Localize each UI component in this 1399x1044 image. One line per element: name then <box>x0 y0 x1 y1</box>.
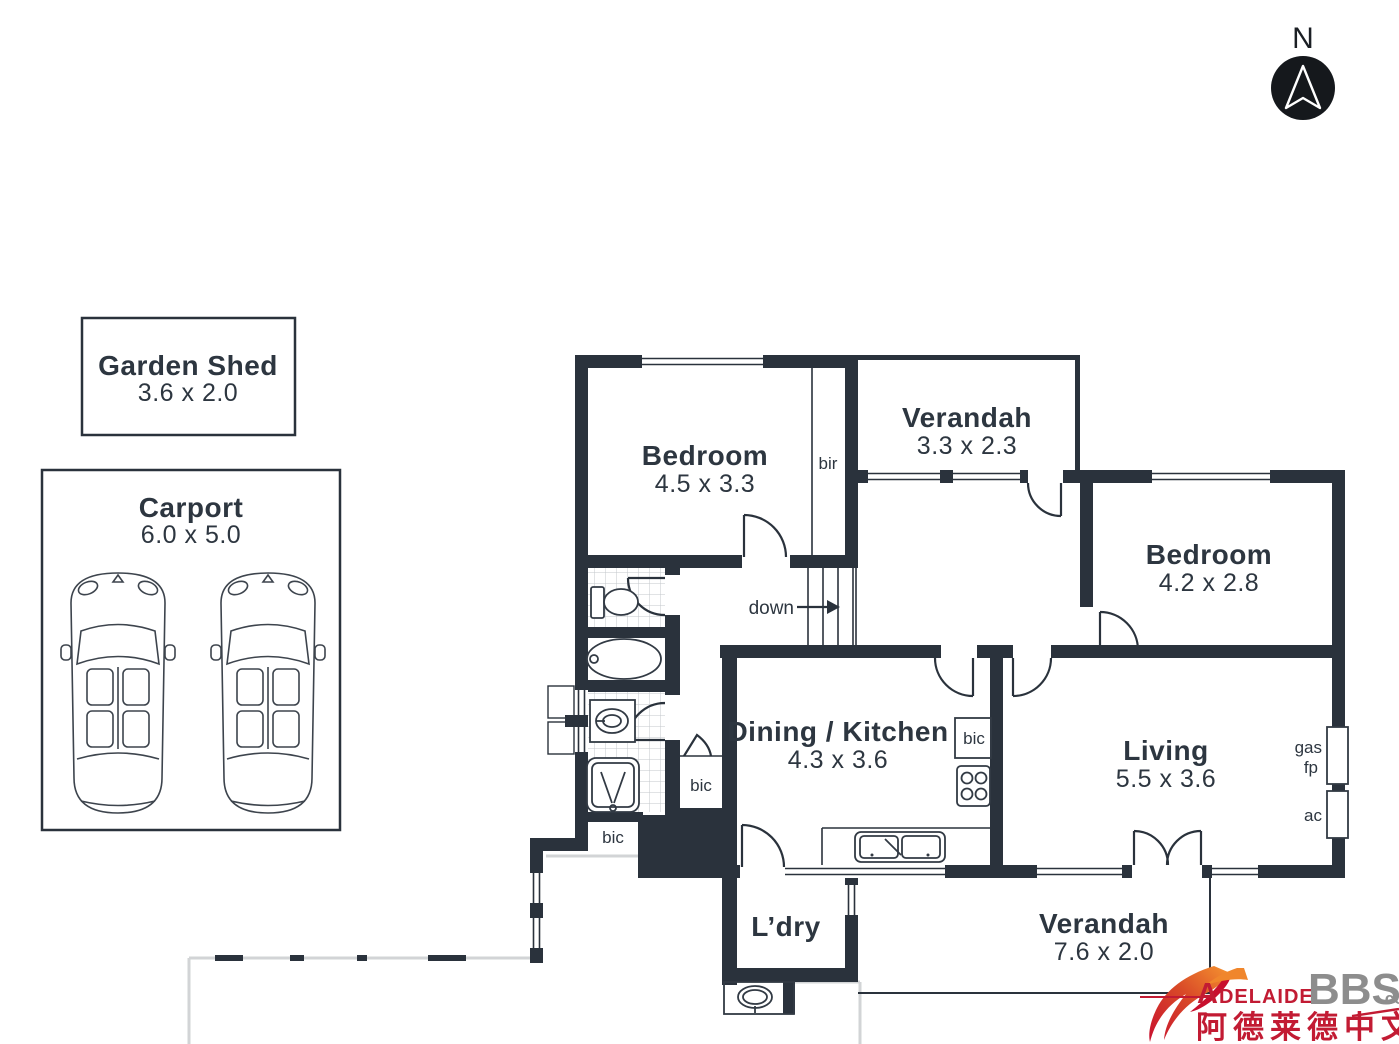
bedroom1-dims: 4.5 x 3.3 <box>655 470 755 498</box>
garden-shed-dims: 3.6 x 2.0 <box>138 379 238 407</box>
dining-name: Dining / Kitchen <box>727 716 948 747</box>
shower-icon <box>587 758 639 812</box>
verandah-bottom-dims: 7.6 x 2.0 <box>1054 938 1154 966</box>
verandah-bottom-name: Verandah <box>1039 908 1169 939</box>
room-label-bedroom-1: Bedroom 4.5 x 3.3 <box>642 440 768 498</box>
bedroom1-name: Bedroom <box>642 440 768 471</box>
vanity-basin-icon <box>590 700 635 742</box>
garden-shed-label: Garden Shed <box>98 350 278 381</box>
watermark: Adelaide BBS .com 阿德莱德中文网 <box>1140 965 1399 1044</box>
gas-label: gas <box>1295 738 1322 757</box>
carport-dims: 6.0 x 5.0 <box>141 521 241 549</box>
gas-fireplace-icon <box>1327 727 1348 784</box>
kitchen-cupboard-label: bic <box>963 729 985 748</box>
watermark-brand-suffix: .com <box>1380 989 1399 1008</box>
air-conditioner-icon <box>1327 791 1348 838</box>
bath-cupboard-label: bic <box>602 828 624 847</box>
verandah-top-name: Verandah <box>902 402 1032 433</box>
north-compass: N <box>1271 22 1335 120</box>
toilet-icon <box>591 587 638 618</box>
built-in-robe-label: bir <box>819 454 838 473</box>
cooktop-icon <box>957 766 990 806</box>
north-label: N <box>1292 22 1314 55</box>
property-boundary <box>189 856 860 1044</box>
staircase: down <box>749 568 856 645</box>
bathtub-icon <box>587 639 661 679</box>
floorplan-page: Garden Shed 3.6 x 2.0 Carport 6.0 x 5.0 <box>0 0 1399 1044</box>
car-top-view-icon <box>61 573 175 813</box>
stairs-down-label: down <box>749 598 794 619</box>
dining-dims: 4.3 x 3.6 <box>788 746 888 774</box>
room-label-verandah-bottom: Verandah 7.6 x 2.0 <box>1039 908 1169 966</box>
watermark-chinese: 阿德莱德中文网 <box>1196 1010 1399 1044</box>
carport-label: Carport <box>139 492 244 523</box>
hall-cupboard-label: bic <box>690 776 712 795</box>
fireplace-label: fp <box>1304 758 1318 777</box>
laundry-name: L’dry <box>751 911 820 942</box>
car-top-view-icon <box>211 573 325 813</box>
watermark-brand-red: Adelaide <box>1197 978 1314 1010</box>
room-label-verandah-top: Verandah 3.3 x 2.3 <box>902 402 1032 460</box>
room-label-laundry: L’dry <box>751 911 820 942</box>
floorplan-drawing: Garden Shed 3.6 x 2.0 Carport 6.0 x 5.0 <box>0 0 1399 1044</box>
living-dims: 5.5 x 3.6 <box>1116 765 1216 793</box>
living-name: Living <box>1123 735 1208 766</box>
room-label-bedroom-2: Bedroom 4.2 x 2.8 <box>1146 539 1272 597</box>
bedroom2-name: Bedroom <box>1146 539 1272 570</box>
garden-shed: Garden Shed 3.6 x 2.0 <box>82 318 295 435</box>
kitchen-bench-sink-icon <box>822 828 990 865</box>
room-label-dining-kitchen: Dining / Kitchen 4.3 x 3.6 <box>727 716 948 774</box>
bedroom2-dims: 4.2 x 2.8 <box>1159 569 1259 597</box>
carport: Carport 6.0 x 5.0 <box>42 470 340 830</box>
room-label-living: Living 5.5 x 3.6 <box>1116 735 1216 793</box>
verandah-top-dims: 3.3 x 2.3 <box>917 432 1017 460</box>
ac-label: ac <box>1304 806 1322 825</box>
